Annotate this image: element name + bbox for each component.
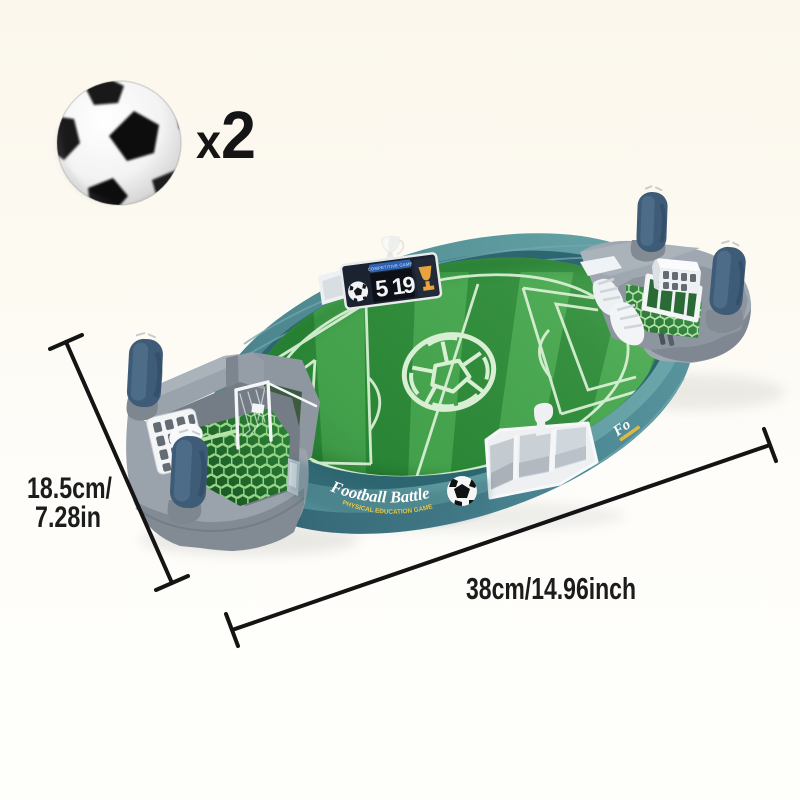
- svg-text:38cm/14.96inch: 38cm/14.96inch: [466, 571, 636, 606]
- svg-text:7.28in: 7.28in: [35, 501, 101, 534]
